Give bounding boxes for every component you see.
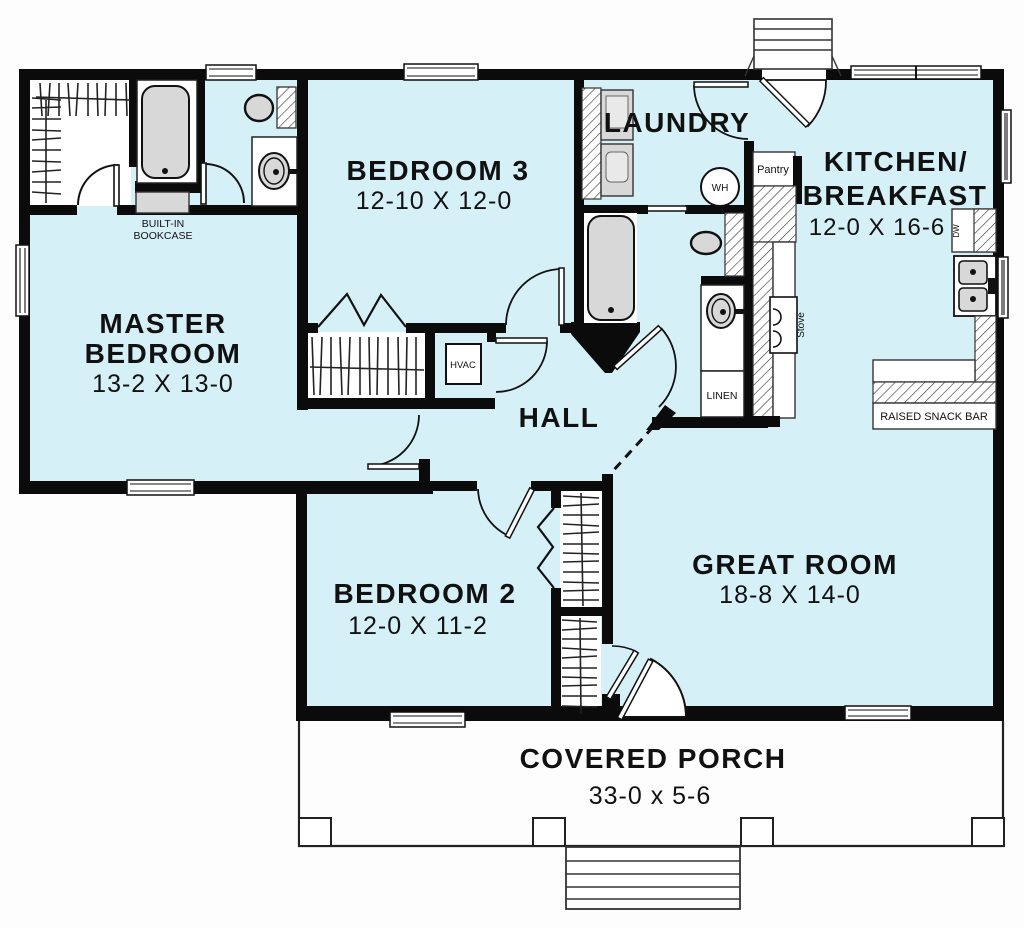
svg-text:DW: DW xyxy=(952,224,961,238)
svg-text:BEDROOM 2: BEDROOM 2 xyxy=(333,578,516,609)
svg-text:COVERED PORCH: COVERED PORCH xyxy=(520,743,787,774)
svg-text:BUILT-IN: BUILT-IN xyxy=(142,218,184,230)
svg-text:KITCHEN/: KITCHEN/ xyxy=(824,146,968,177)
svg-text:HALL: HALL xyxy=(519,402,600,433)
svg-text:BREAKFAST: BREAKFAST xyxy=(803,180,988,211)
svg-text:33-0 x 5-6: 33-0 x 5-6 xyxy=(589,782,712,810)
svg-text:Pantry: Pantry xyxy=(757,164,789,176)
svg-text:12-0 X 11-2: 12-0 X 11-2 xyxy=(348,612,488,640)
svg-text:GREAT ROOM: GREAT ROOM xyxy=(692,549,898,580)
svg-text:BOOKCASE: BOOKCASE xyxy=(134,230,193,242)
svg-text:MASTER: MASTER xyxy=(99,308,226,339)
svg-text:LAUNDRY: LAUNDRY xyxy=(604,107,750,138)
svg-text:12-10 X 12-0: 12-10 X 12-0 xyxy=(356,187,513,215)
svg-text:Stove: Stove xyxy=(796,312,807,338)
svg-text:BEDROOM 3: BEDROOM 3 xyxy=(346,155,529,186)
svg-text:WH: WH xyxy=(712,183,729,194)
svg-text:13-2 X 13-0: 13-2 X 13-0 xyxy=(92,370,234,398)
svg-text:RAISED SNACK BAR: RAISED SNACK BAR xyxy=(880,411,988,423)
svg-text:BEDROOM: BEDROOM xyxy=(85,338,242,369)
svg-text:18-8 X 14-0: 18-8 X 14-0 xyxy=(719,581,861,609)
svg-text:LINEN: LINEN xyxy=(707,390,738,402)
svg-text:HVAC: HVAC xyxy=(450,360,476,371)
svg-text:12-0 X 16-6: 12-0 X 16-6 xyxy=(809,214,945,241)
